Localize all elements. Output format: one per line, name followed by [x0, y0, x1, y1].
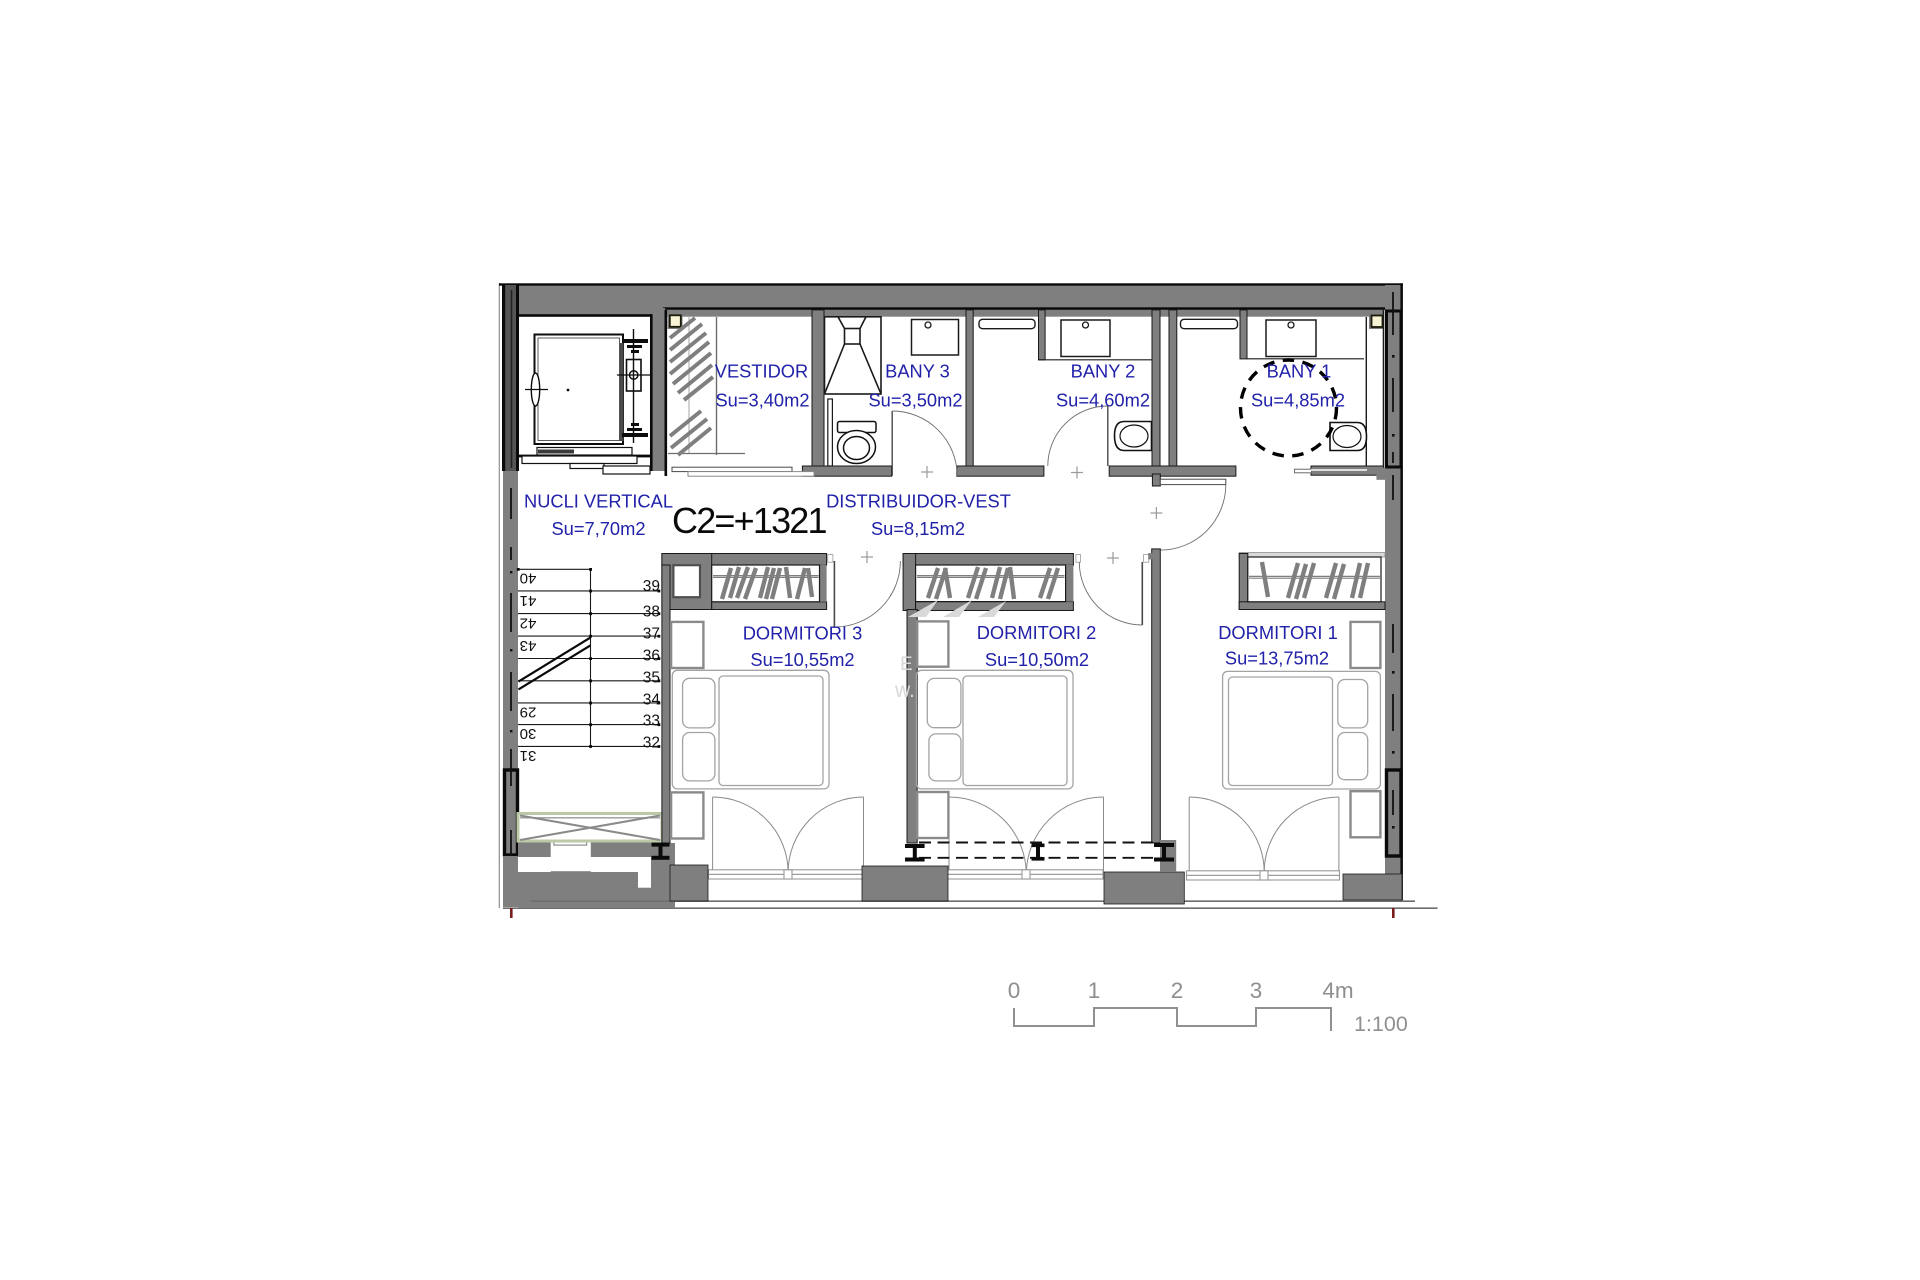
- svg-text:38: 38: [643, 603, 660, 620]
- svg-text:DORMITORI 2: DORMITORI 2: [977, 622, 1097, 643]
- svg-text:29: 29: [520, 703, 537, 720]
- svg-text:2: 2: [1171, 978, 1184, 1003]
- svg-text:VESTIDOR: VESTIDOR: [715, 361, 808, 382]
- svg-text:DISTRIBUIDOR-VEST: DISTRIBUIDOR-VEST: [826, 491, 1011, 512]
- svg-text:BANY 3: BANY 3: [885, 361, 950, 382]
- svg-text:C2=+1321: C2=+1321: [672, 500, 827, 541]
- svg-text:41: 41: [520, 592, 537, 609]
- svg-text:36: 36: [643, 647, 660, 664]
- svg-text:Su=4,85m2: Su=4,85m2: [1251, 390, 1345, 411]
- svg-text:Su=8,15m2: Su=8,15m2: [871, 518, 965, 539]
- svg-text:37: 37: [643, 625, 660, 642]
- svg-text:40: 40: [520, 570, 537, 587]
- svg-text:1: 1: [1088, 978, 1101, 1003]
- svg-text:BANY 1: BANY 1: [1267, 361, 1332, 382]
- svg-text:34: 34: [643, 691, 661, 708]
- svg-text:35: 35: [643, 669, 660, 686]
- svg-text:E: E: [900, 654, 913, 675]
- svg-text:30: 30: [520, 725, 537, 742]
- svg-text:4m: 4m: [1322, 978, 1353, 1003]
- svg-text:BANY 2: BANY 2: [1071, 361, 1136, 382]
- svg-text:w.: w.: [894, 679, 915, 702]
- svg-text:43: 43: [520, 637, 537, 654]
- svg-text:Su=4,60m2: Su=4,60m2: [1056, 390, 1150, 411]
- svg-text:39: 39: [643, 578, 660, 595]
- svg-text:31: 31: [520, 747, 537, 764]
- svg-text:32: 32: [643, 734, 660, 751]
- svg-text:Su=10,50m2: Su=10,50m2: [985, 649, 1089, 670]
- svg-text:Su=3,50m2: Su=3,50m2: [868, 390, 962, 411]
- svg-text:Su=10,55m2: Su=10,55m2: [750, 649, 854, 670]
- svg-text:33: 33: [643, 713, 660, 730]
- svg-text:3: 3: [1250, 978, 1263, 1003]
- svg-text:DORMITORI 1: DORMITORI 1: [1218, 622, 1338, 643]
- svg-text:Su=7,70m2: Su=7,70m2: [551, 518, 645, 539]
- svg-text:0: 0: [1008, 978, 1021, 1003]
- svg-text:NUCLI VERTICAL: NUCLI VERTICAL: [524, 491, 673, 512]
- svg-text:DORMITORI 3: DORMITORI 3: [743, 623, 863, 644]
- svg-text:42: 42: [520, 614, 537, 631]
- svg-text:1:100: 1:100: [1354, 1012, 1408, 1036]
- svg-text:Su=13,75m2: Su=13,75m2: [1225, 648, 1329, 669]
- svg-text:Su=3,40m2: Su=3,40m2: [715, 390, 809, 411]
